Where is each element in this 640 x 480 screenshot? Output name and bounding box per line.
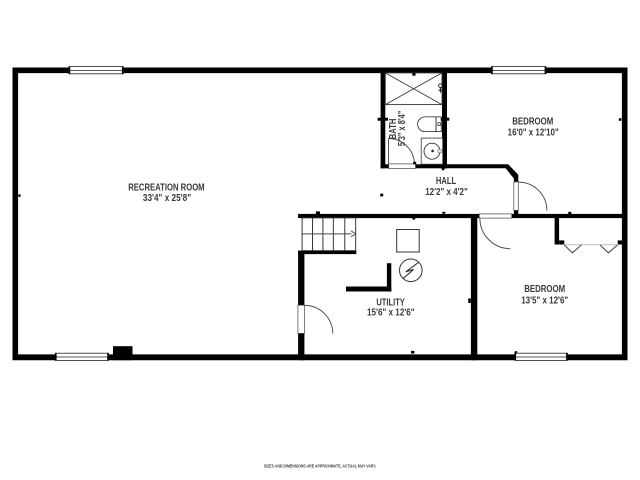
- svg-text:13'5" x 12'6": 13'5" x 12'6": [521, 296, 568, 307]
- svg-text:BEDROOM: BEDROOM: [512, 116, 553, 127]
- svg-text:16'0" x 12'10": 16'0" x 12'10": [508, 128, 559, 139]
- svg-text:33'4" x 25'8": 33'4" x 25'8": [143, 193, 191, 204]
- svg-text:12'2" x 4'2": 12'2" x 4'2": [425, 187, 468, 198]
- svg-text:HALL: HALL: [436, 176, 456, 187]
- svg-text:BEDROOM: BEDROOM: [524, 284, 565, 295]
- svg-text:RECREATION ROOM: RECREATION ROOM: [128, 183, 204, 194]
- svg-text:15'6" x 12'6": 15'6" x 12'6": [367, 308, 415, 319]
- svg-text:SIZES AND DIMENSIONS ARE APPRO: SIZES AND DIMENSIONS ARE APPROXIMATE, AC…: [264, 463, 377, 468]
- svg-text:5'3" x 8'4": 5'3" x 8'4": [397, 111, 408, 147]
